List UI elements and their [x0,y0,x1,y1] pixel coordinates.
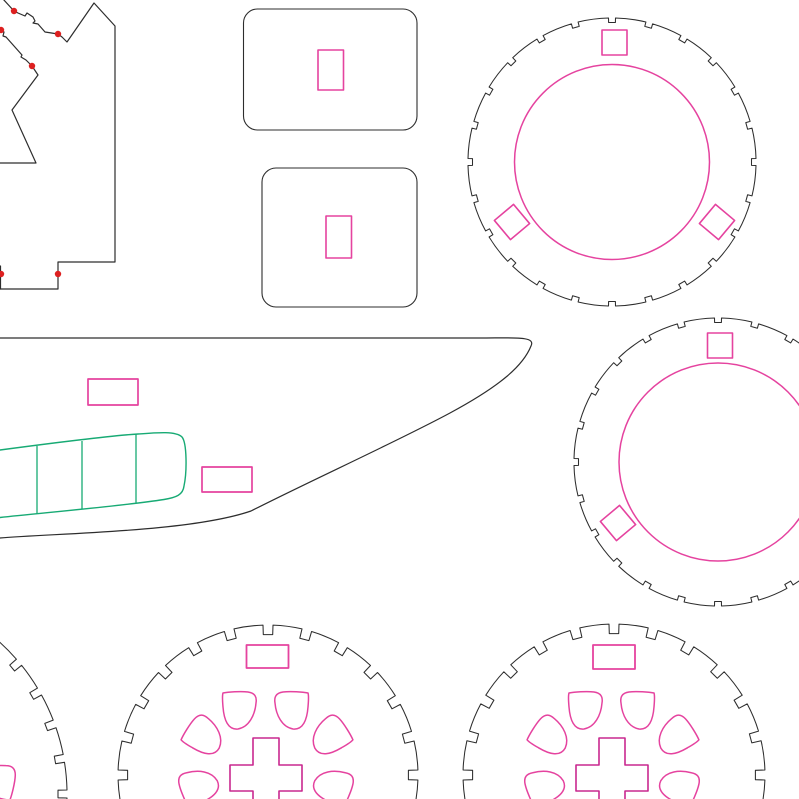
vertex-node-dot[interactable] [55,31,61,37]
ring-top-slot-square-left[interactable] [494,204,529,239]
ring-top-slot-square-right[interactable] [699,204,734,239]
wheel-right-petal[interactable] [650,712,700,761]
parts-drawing[interactable] [0,0,799,799]
wheel-right-slot[interactable] [593,645,635,669]
wheel-middle-petal[interactable] [176,764,223,799]
plate-small-outline[interactable] [244,9,418,130]
vertex-node-dot[interactable] [0,271,4,277]
ring-right-engrave-circle[interactable] [619,363,799,561]
ring-right-slot-square-top[interactable] [708,333,733,358]
ring-right-cut-outline[interactable] [574,318,799,606]
wheel-right-petal[interactable] [568,692,602,729]
jagged-panel-cut-path[interactable] [0,0,115,289]
wheel-middle-petal[interactable] [304,712,354,761]
wheel-middle-petal[interactable] [309,764,356,799]
hull-slot-a[interactable] [88,379,138,405]
wheel-right-petal[interactable] [526,712,576,761]
wheel-right-cross[interactable] [576,738,648,799]
ring-top-slot-square-top[interactable] [602,30,627,55]
hull-cut-path[interactable] [0,338,532,538]
wheel-middle-petal[interactable] [180,712,230,761]
vertex-node-dot[interactable] [29,63,35,69]
vertex-node-dot[interactable] [55,271,61,277]
wheel-right-petal[interactable] [522,764,569,799]
vertex-node-dot[interactable] [11,8,17,14]
wheel-middle-petal[interactable] [275,692,309,729]
wheel-middle-cross[interactable] [230,738,302,799]
hull-slot-b[interactable] [202,467,252,492]
plate-large-outline[interactable] [262,168,417,307]
vector-layout-canvas[interactable] [0,0,799,799]
wheel-right-petal[interactable] [655,764,702,799]
wheel-right-petal[interactable] [621,692,655,729]
wheel-middle-petal[interactable] [222,692,256,729]
wheel-left-petal[interactable] [0,761,17,799]
wheel-middle-slot[interactable] [247,645,289,668]
plate-large-slot[interactable] [326,216,352,258]
ring-right-slot-square-left[interactable] [600,505,635,540]
jagged-panel-inner-edge-path[interactable] [0,30,38,163]
wheel-middle-cut-outline[interactable] [118,625,418,799]
ring-top-cut-outline[interactable] [468,18,756,306]
wheel-left-cut-outline[interactable] [0,589,67,799]
wheel-right-cut-outline[interactable] [463,624,765,799]
window-strip-outline[interactable] [0,433,186,518]
ring-top-engrave-circle[interactable] [515,65,710,260]
plate-small-slot[interactable] [318,50,344,90]
